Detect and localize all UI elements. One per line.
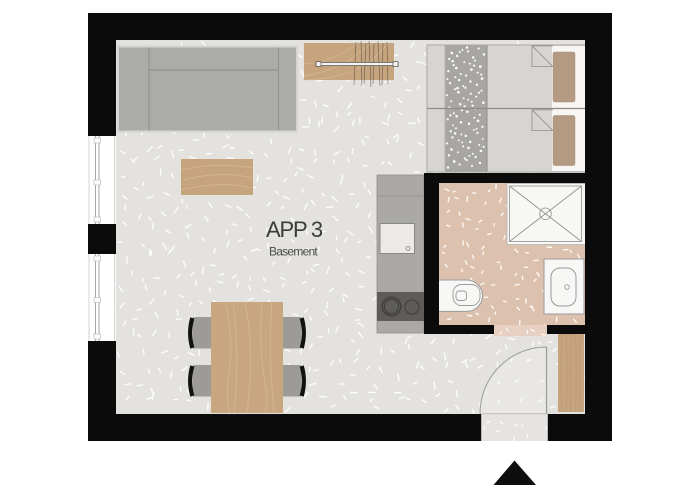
svg-text:APP 3: APP 3	[266, 217, 323, 242]
svg-text:Basement: Basement	[269, 245, 318, 259]
